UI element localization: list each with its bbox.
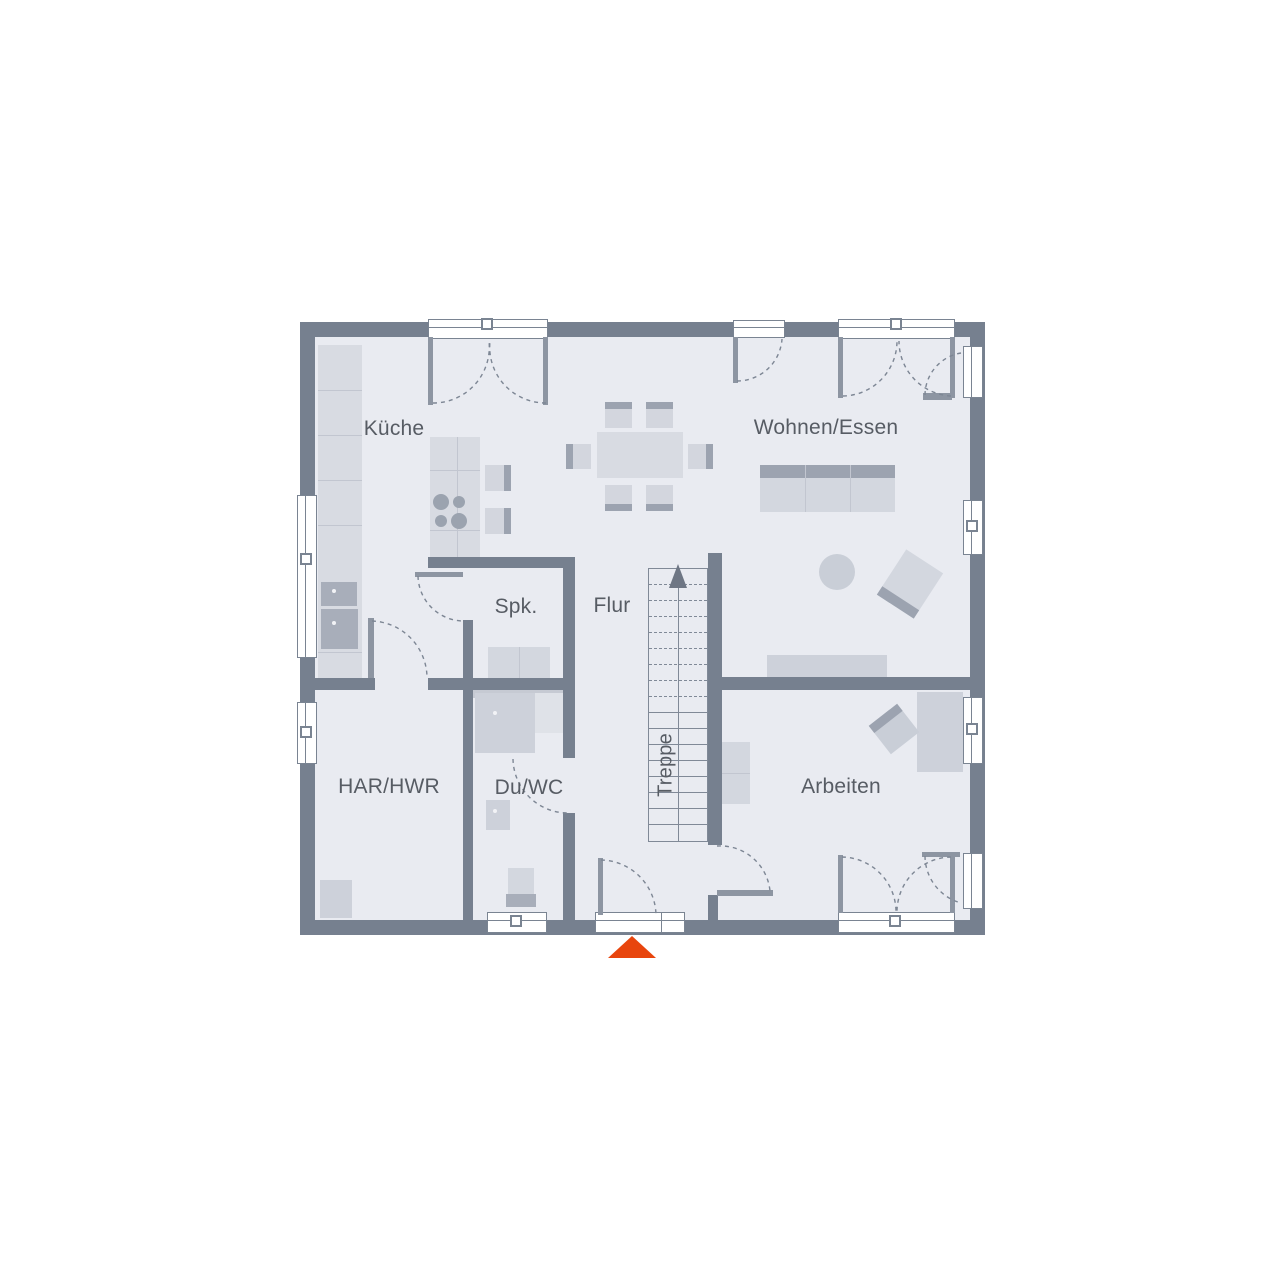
shelf-line xyxy=(718,773,750,774)
door-leaf xyxy=(598,858,603,915)
stair-center-line xyxy=(678,568,679,842)
door-leaf xyxy=(368,618,374,678)
wall-segment xyxy=(428,557,575,568)
dining-chair xyxy=(646,485,673,511)
sofa-line xyxy=(805,465,806,512)
kitchen-sink-dot xyxy=(332,589,336,593)
wall-segment xyxy=(428,678,575,690)
bar-stool xyxy=(485,508,511,534)
door-leaf xyxy=(950,337,955,398)
coffee-table xyxy=(819,554,855,590)
shower xyxy=(475,693,535,753)
washbasin-dot xyxy=(493,809,497,813)
window-handle xyxy=(300,726,312,738)
door-leaf xyxy=(543,337,548,405)
dining-chair-back xyxy=(605,402,632,409)
dining-chair-back xyxy=(646,402,673,409)
appliance xyxy=(320,880,352,918)
window-left-kueche-frame-line xyxy=(305,496,306,657)
bar-stool xyxy=(485,465,511,491)
kitchen-counter-line xyxy=(318,525,362,526)
window-handle xyxy=(481,318,493,330)
door-leaf xyxy=(428,337,433,405)
cooktop-burner xyxy=(435,515,447,527)
cooktop-burner xyxy=(453,496,465,508)
door-top-wohnen-frame-line xyxy=(734,327,784,328)
floor-plan-canvas: Küche Wohnen/Essen Spk. Flur Treppe HAR/… xyxy=(0,0,1280,1280)
room-label-spk: Spk. xyxy=(495,595,538,619)
dining-chair-back xyxy=(706,444,713,469)
window-handle xyxy=(966,723,978,735)
bar-stool-back xyxy=(504,508,511,534)
kitchen-island-line xyxy=(430,470,480,471)
window-handle xyxy=(890,318,902,330)
dining-chair-back xyxy=(605,504,632,511)
dining-chair xyxy=(605,402,632,428)
window-left-kueche xyxy=(297,495,317,658)
shelf xyxy=(718,742,750,804)
dining-chair-back xyxy=(566,444,573,469)
window-right-top xyxy=(963,346,983,398)
wall-segment xyxy=(315,678,375,690)
bar-stool-back xyxy=(504,465,511,491)
kitchen-counter-line xyxy=(318,480,362,481)
wall-segment xyxy=(563,568,575,758)
window-right-bottom-frame-line xyxy=(971,854,972,908)
door-leaf xyxy=(838,855,843,913)
room-label-wohnen-essen: Wohnen/Essen xyxy=(754,416,898,440)
entrance-marker-icon xyxy=(608,936,656,958)
wall-segment xyxy=(463,620,473,678)
room-label-flur: Flur xyxy=(594,594,631,618)
kitchen-oven-dot xyxy=(332,621,336,625)
room-label-arbeiten: Arbeiten xyxy=(801,775,881,799)
dining-table xyxy=(597,432,683,478)
window-handle xyxy=(300,553,312,565)
dining-chair xyxy=(566,444,591,469)
entrance-door xyxy=(595,912,685,933)
window-handle xyxy=(966,520,978,532)
pantry-shelf-line xyxy=(519,647,520,678)
wall-segment xyxy=(463,690,473,920)
dining-chair xyxy=(688,444,713,469)
shower-glass xyxy=(535,693,563,733)
entrance-door-frame-line xyxy=(596,920,684,921)
room-label-kueche: Küche xyxy=(364,417,425,441)
floor-plan: Küche Wohnen/Essen Spk. Flur Treppe HAR/… xyxy=(0,0,1280,1280)
wall-segment xyxy=(708,895,718,920)
kitchen-counter-line xyxy=(318,435,362,436)
window-right-top-frame-line xyxy=(971,347,972,397)
dining-chair xyxy=(646,402,673,428)
cooktop-burner xyxy=(451,513,467,529)
door-leaf xyxy=(950,855,955,913)
wall-segment xyxy=(722,677,985,690)
washbasin xyxy=(486,800,510,830)
sofa-line xyxy=(850,465,851,512)
entrance-door-divider xyxy=(661,913,662,932)
dining-chair-back xyxy=(646,504,673,511)
wc-seat xyxy=(508,868,534,894)
door-leaf xyxy=(717,890,773,896)
desk xyxy=(917,692,963,772)
room-label-du-wc: Du/WC xyxy=(495,776,564,800)
window-handle xyxy=(510,915,522,927)
wc-cistern xyxy=(506,894,536,907)
dining-chair xyxy=(605,485,632,511)
door-leaf xyxy=(415,572,463,577)
window-right-bottom xyxy=(963,853,983,909)
shower-dot xyxy=(493,711,497,715)
pantry-shelf xyxy=(488,647,550,678)
cooktop-burner xyxy=(433,494,449,510)
door-leaf xyxy=(923,393,952,400)
wall-segment xyxy=(563,813,575,920)
door-leaf xyxy=(838,337,843,398)
door-top-wohnen xyxy=(733,320,785,338)
kitchen-counter-line xyxy=(318,652,362,653)
wall-segment xyxy=(970,322,985,935)
room-label-har-hwr: HAR/HWR xyxy=(338,775,440,799)
kitchen-sink xyxy=(321,582,357,606)
window-handle xyxy=(889,915,901,927)
sideboard xyxy=(767,655,887,678)
kitchen-island-line xyxy=(430,530,480,531)
door-leaf xyxy=(733,337,738,383)
room-label-treppe: Treppe xyxy=(655,733,678,797)
wall-segment xyxy=(708,553,722,845)
kitchen-counter-line xyxy=(318,390,362,391)
sofa xyxy=(760,465,895,512)
kitchen-oven xyxy=(321,609,358,649)
sofa-back xyxy=(760,465,895,478)
